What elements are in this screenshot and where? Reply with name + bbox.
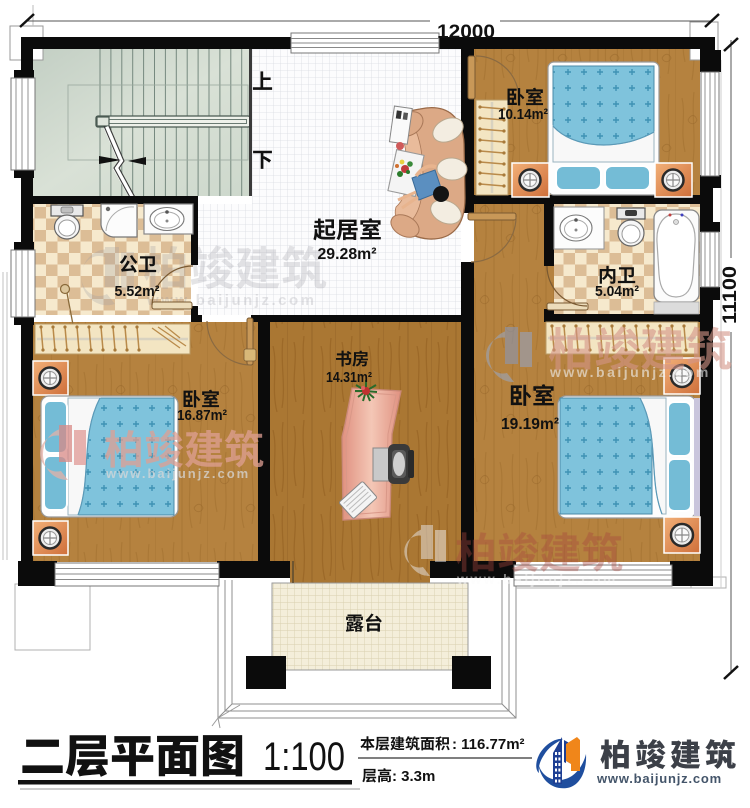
svg-text:5.52m²: 5.52m²	[115, 283, 160, 300]
svg-text:16.87m²: 16.87m²	[177, 407, 227, 424]
svg-text:10.14m²: 10.14m²	[498, 106, 548, 123]
svg-text:11100: 11100	[720, 266, 741, 324]
svg-text:www.baijunjz.com: www.baijunjz.com	[105, 466, 250, 481]
svg-text:1:100: 1:100	[263, 735, 345, 779]
svg-text:: 3.3m: : 3.3m	[392, 768, 435, 785]
svg-text:www.baijunjz.com: www.baijunjz.com	[456, 571, 618, 587]
svg-text:14.31m²: 14.31m²	[326, 370, 372, 386]
svg-text:www.baijunjz.com: www.baijunjz.com	[549, 364, 711, 380]
svg-text:5.04m²: 5.04m²	[595, 283, 639, 300]
svg-text:19.19m²: 19.19m²	[501, 416, 559, 433]
svg-text:: 116.77m²: : 116.77m²	[452, 736, 525, 753]
svg-text:29.28m²: 29.28m²	[318, 246, 377, 263]
svg-text:www.baijunjz.com: www.baijunjz.com	[596, 771, 722, 786]
svg-text:12000: 12000	[437, 22, 495, 43]
